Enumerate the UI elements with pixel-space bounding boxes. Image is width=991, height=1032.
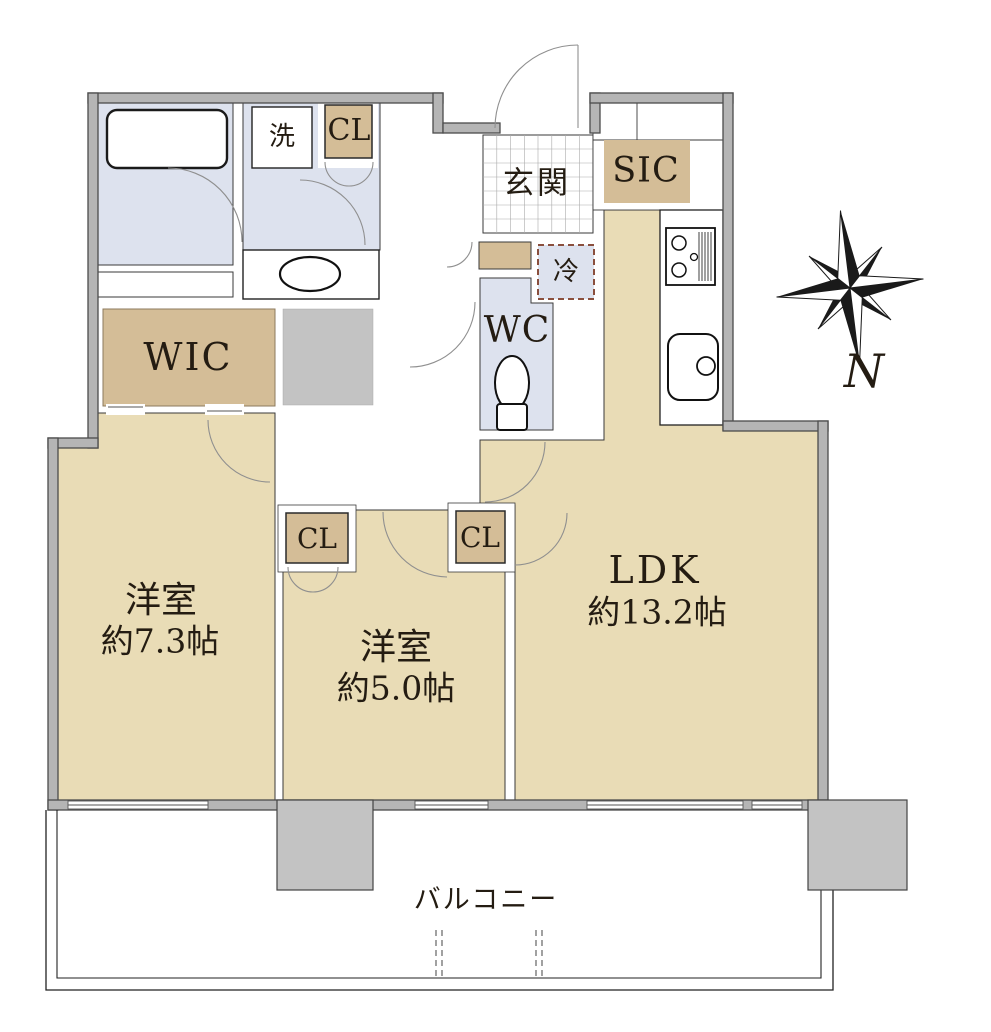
ldk-name: LDK: [608, 551, 701, 589]
balcony-pillar-left: [277, 800, 373, 890]
ldk-area: 約13.2帖: [587, 596, 726, 629]
shoe-in-closet-label: SIC: [612, 154, 680, 189]
stove: [666, 228, 715, 285]
bath-counter: [98, 272, 233, 297]
closet2-label: CL: [460, 524, 500, 552]
toilet-tank: [497, 404, 527, 430]
floor-plan: 洗 CL 玄関 SIC 冷 WC WIC 洋室 約7.3帖 洋室 約5.0帖 L…: [0, 0, 991, 1032]
wash-basin: [280, 257, 340, 291]
floor-plan-drawing: [0, 0, 991, 1032]
laundry-label: 洗: [269, 124, 295, 150]
closet-top-label: CL: [328, 116, 371, 146]
hall-cabinet: [479, 242, 531, 269]
balcony-partition-lines: [436, 930, 542, 978]
windows: [68, 801, 802, 809]
bedroom1-name: 洋室: [125, 583, 197, 619]
bedroom2-name: 洋室: [360, 630, 432, 666]
bedroom1-area: 約7.3帖: [101, 625, 219, 658]
toilet-bowl: [495, 356, 529, 410]
bathtub: [107, 110, 227, 168]
closet1-label: CL: [297, 525, 337, 553]
entrance-label: 玄関: [503, 169, 571, 200]
balcony-pillar-right: [808, 800, 907, 890]
kitchen-sink: [668, 334, 718, 400]
walk-in-closet-label: WIC: [143, 338, 232, 376]
fridge-label: 冷: [553, 259, 579, 285]
compass-north-label: N: [844, 348, 884, 394]
bedroom2-area: 約5.0帖: [337, 672, 455, 705]
balcony-label: バルコニー: [414, 887, 558, 914]
pipe-space: [283, 309, 373, 405]
toilet-label: WC: [484, 313, 551, 349]
